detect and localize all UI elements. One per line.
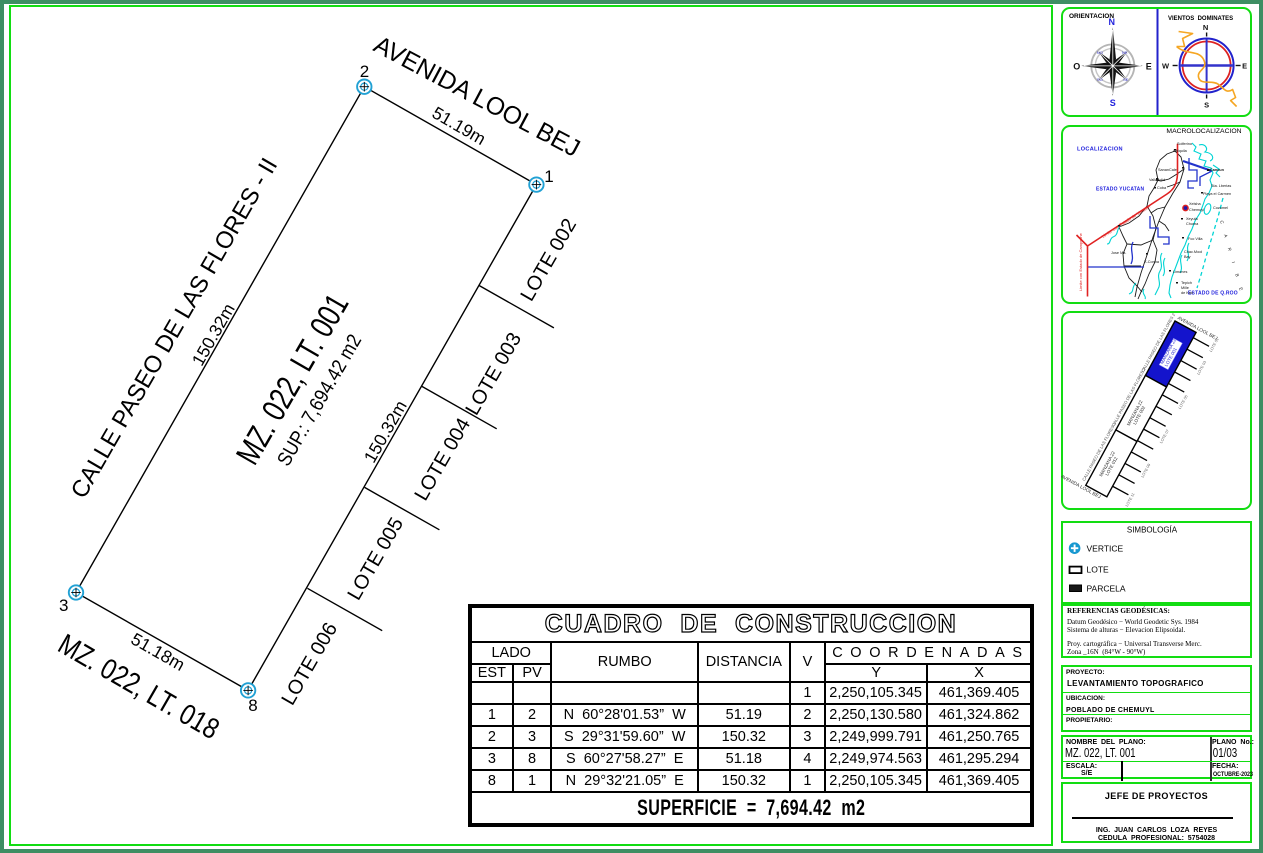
svg-text:LOTE 07: LOTE 07 [1159, 429, 1170, 444]
svg-text:ORIENTACION: ORIENTACION [1069, 13, 1114, 20]
svg-text:N: N [1203, 23, 1208, 32]
svg-text:E: E [1146, 61, 1152, 71]
svg-text:VERTICE: VERTICE [1087, 544, 1124, 554]
svg-text:X-Conha: X-Conha [1144, 260, 1160, 264]
svg-text:LOTE: LOTE [1087, 565, 1110, 575]
svg-text:Chuma: Chuma [1186, 222, 1199, 226]
svg-text:MACROLOCALIZACION: MACROLOCALIZACION [1166, 128, 1241, 135]
svg-text:LOTE 05: LOTE 05 [1178, 395, 1189, 410]
svg-text:ESTADO DE Q.ROO: ESTADO DE Q.ROO [1188, 290, 1238, 296]
svg-text:E: E [1242, 62, 1247, 71]
svg-text:C A R I B E: C A R I B E [1219, 220, 1245, 296]
svg-text:N: N [1109, 17, 1116, 27]
svg-text:LOTE 11: LOTE 11 [1125, 492, 1136, 507]
svg-text:Xeyula: Xeyula [1186, 217, 1198, 221]
svg-text:LOTE 003: LOTE 003 [461, 329, 526, 419]
svg-text:Playa el Carmen: Playa el Carmen [1203, 192, 1231, 196]
svg-text:LOTE 09: LOTE 09 [1141, 463, 1152, 478]
svg-text:LOTE 002: LOTE 002 [516, 215, 581, 305]
svg-text:NO: NO [1097, 50, 1103, 55]
svg-text:Limite con Estado de Yucatan: Limite con Estado de Yucatan [1101, 203, 1152, 238]
svg-text:Bay: Bay [1184, 255, 1191, 259]
svg-text:LOTE 03: LOTE 03 [1196, 360, 1207, 375]
svg-text:PARCELA: PARCELA [1087, 584, 1126, 594]
svg-text:LOTE 004: LOTE 004 [410, 415, 475, 505]
svg-text:ESTADO YUCATAN: ESTADO YUCATAN [1096, 187, 1144, 193]
svg-text:SIMBOLOGÍA: SIMBOLOGÍA [1127, 526, 1178, 535]
svg-text:Chac.Mool: Chac.Mool [1184, 250, 1202, 254]
svg-text:VIENTOS DOMINATES: VIENTOS DOMINATES [1168, 16, 1233, 22]
svg-text:LOTE 006: LOTE 006 [277, 619, 342, 709]
svg-text:SE: SE [1123, 77, 1129, 82]
svg-text:LOCALIZACION: LOCALIZACION [1077, 146, 1123, 152]
svg-text:Chemuyl: Chemuyl [1189, 208, 1204, 212]
svg-text:Solferino: Solferino [1177, 142, 1192, 146]
svg-text:LOTE 005: LOTE 005 [343, 514, 408, 604]
svg-text:Sta. Lberias: Sta. Lberias [1211, 184, 1231, 188]
svg-text:Fco Villa: Fco Villa [1188, 237, 1203, 241]
svg-text:Limones: Limones [1173, 270, 1187, 274]
svg-text:Mille: Mille [1181, 286, 1189, 290]
svg-text:SO: SO [1097, 77, 1103, 82]
svg-text:S: S [1110, 98, 1116, 108]
svg-text:Limite con Estado de Campeche: Limite con Estado de Campeche [1078, 232, 1083, 291]
svg-text:8: 8 [248, 696, 257, 715]
svg-text:W: W [1162, 62, 1170, 71]
svg-text:Coba: Coba [1157, 186, 1167, 190]
svg-text:Chiquila: Chiquila [1173, 149, 1188, 153]
svg-text:O: O [1073, 61, 1080, 71]
svg-text:de Kan: de Kan [1181, 291, 1193, 295]
svg-text:SananCale: SananCale [1158, 168, 1177, 172]
svg-text:2: 2 [360, 62, 369, 81]
svg-text:3: 3 [59, 596, 68, 615]
svg-text:LOTE 01: LOTE 01 [1209, 337, 1220, 352]
svg-text:1: 1 [544, 167, 553, 186]
svg-text:Cozumel: Cozumel [1213, 206, 1228, 210]
svg-text:150.32m: 150.32m [360, 397, 411, 466]
svg-text:NE: NE [1122, 50, 1128, 55]
svg-text:Tepich: Tepich [1181, 281, 1192, 285]
svg-text:Valladolid: Valladolid [1149, 178, 1165, 182]
svg-text:Cancun: Cancun [1210, 168, 1225, 172]
svg-text:S: S [1204, 101, 1209, 110]
svg-text:Xelsha: Xelsha [1189, 202, 1201, 206]
svg-text:Jose Ma.: Jose Ma. [1111, 251, 1126, 255]
